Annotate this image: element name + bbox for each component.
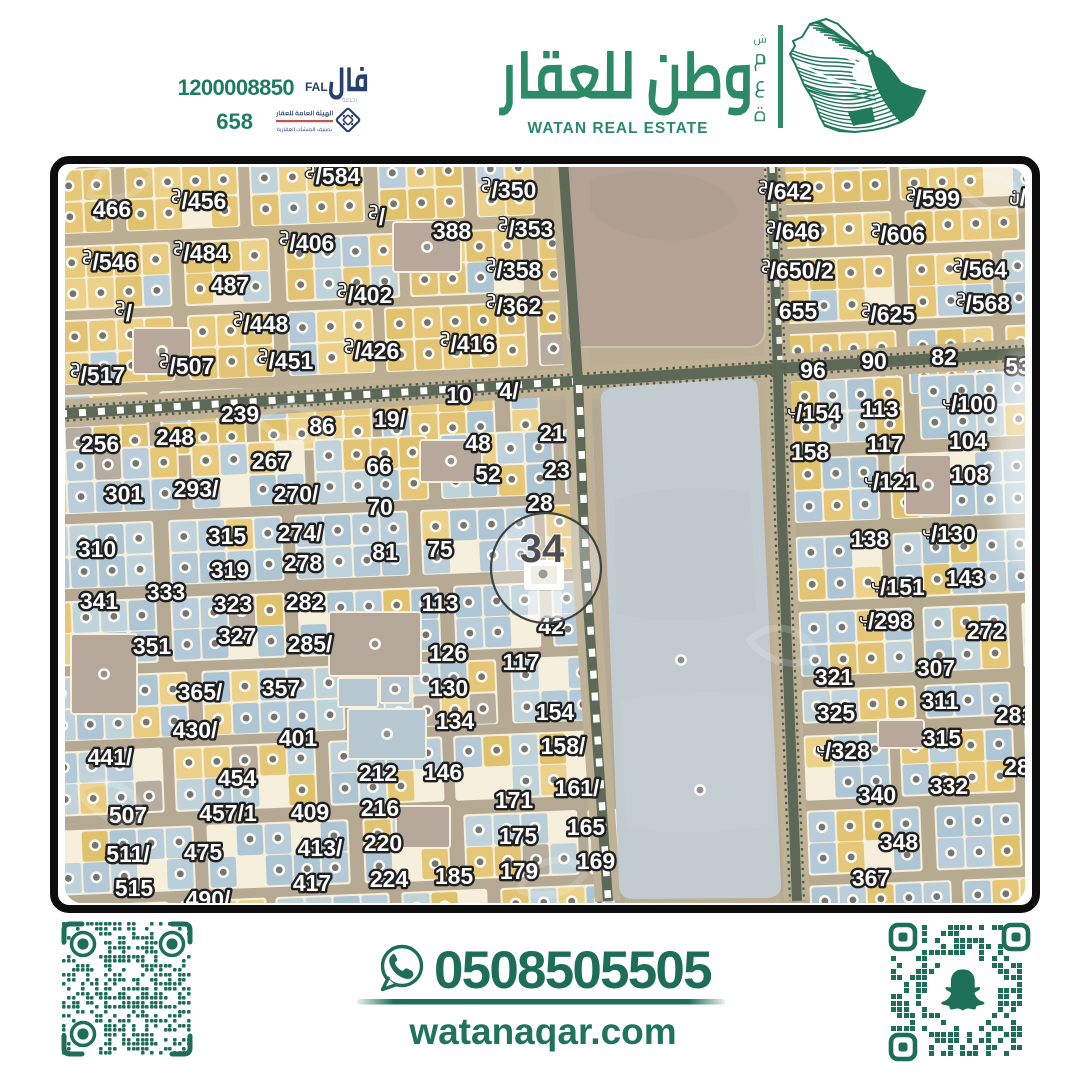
svg-text:WATAN REAL ESTATE: WATAN REAL ESTATE	[528, 120, 709, 137]
svg-text:0508505505: 0508505505	[434, 941, 711, 1000]
svg-text:watanaqar.com: watanaqar.com	[408, 1011, 676, 1052]
svg-text:FAL: FAL	[305, 80, 328, 94]
svg-text:34: 34	[520, 527, 565, 571]
svg-text:658: 658	[216, 109, 253, 134]
svg-text:1200008850: 1200008850	[178, 75, 295, 100]
